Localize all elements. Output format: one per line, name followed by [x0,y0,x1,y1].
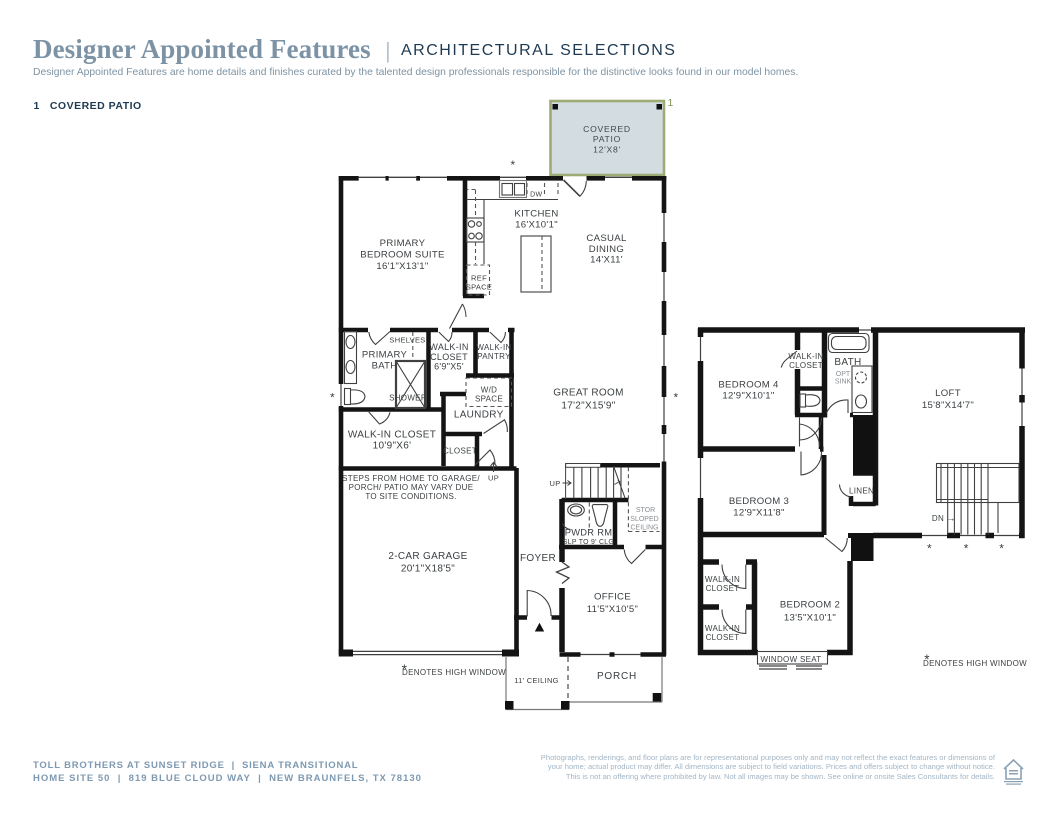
svg-text:WALK-IN: WALK-IN [705,624,740,633]
svg-text:WINDOW SEAT: WINDOW SEAT [761,655,822,664]
svg-text:CLOSET: CLOSET [430,352,468,362]
svg-text:STEPS FROM HOME TO GARAGE/: STEPS FROM HOME TO GARAGE/ [342,474,480,483]
svg-text:SINK: SINK [835,379,852,386]
svg-text:*: * [330,391,335,405]
svg-text:CLOSET: CLOSET [706,584,740,593]
svg-text:GREAT ROOM: GREAT ROOM [553,388,623,399]
svg-text:REF: REF [471,274,487,283]
svg-text:PORCH/ PATIO MAY VARY DUE: PORCH/ PATIO MAY VARY DUE [349,483,474,492]
svg-text:WALK-IN: WALK-IN [705,575,740,584]
svg-text:16'X10'1": 16'X10'1" [515,220,558,231]
svg-text:OPT: OPT [836,371,851,378]
svg-text:LAUNDRY: LAUNDRY [454,410,504,421]
svg-text:SHOWER: SHOWER [389,394,427,403]
svg-text:14'X11': 14'X11' [590,254,623,265]
svg-text:WALK-IN: WALK-IN [429,342,468,352]
svg-text:OFFICE: OFFICE [594,592,631,603]
svg-text:WALK-IN: WALK-IN [788,352,823,361]
svg-text:BEDROOM SUITE: BEDROOM SUITE [360,250,444,261]
svg-text:STOR: STOR [636,507,655,514]
svg-text:11' CEILING: 11' CEILING [514,676,559,685]
svg-text:CLOSET: CLOSET [443,447,477,456]
svg-text:10'9"X6': 10'9"X6' [373,441,412,452]
svg-text:*: * [999,542,1004,556]
svg-text:CASUAL: CASUAL [586,233,627,244]
svg-text:CEILING: CEILING [630,525,658,532]
svg-text:DENOTES HIGH WINDOW: DENOTES HIGH WINDOW [923,659,1027,668]
svg-text:PANTRY: PANTRY [477,352,511,361]
svg-text:6'9"X5': 6'9"X5' [434,362,464,372]
svg-text:11'5"X10'5": 11'5"X10'5" [587,604,638,615]
svg-text:SLOPED: SLOPED [630,516,658,523]
svg-text:2-CAR GARAGE: 2-CAR GARAGE [388,551,467,562]
svg-text:DW: DW [530,192,542,199]
svg-text:16'1"X13'1": 16'1"X13'1" [376,261,428,272]
svg-text:BATH: BATH [834,357,861,368]
svg-text:*: * [674,391,679,405]
svg-text:12'9"X11'8": 12'9"X11'8" [733,508,784,519]
svg-text:*: * [927,542,932,556]
svg-text:12'9"X10'1": 12'9"X10'1" [722,391,774,402]
svg-text:SHELVES: SHELVES [389,336,425,345]
svg-text:UP: UP [549,479,560,488]
svg-text:PRIMARY: PRIMARY [362,350,408,361]
svg-text:1: 1 [668,97,674,109]
svg-text:LOFT: LOFT [935,388,961,399]
svg-text:DENOTES HIGH WINDOW: DENOTES HIGH WINDOW [402,668,506,677]
svg-text:WALK-IN CLOSET: WALK-IN CLOSET [348,430,436,441]
svg-text:BEDROOM 4: BEDROOM 4 [718,380,779,391]
svg-text:TO SITE CONDITIONS.: TO SITE CONDITIONS. [365,492,456,501]
svg-text:DINING: DINING [589,244,624,255]
svg-text:17'2"X15'9": 17'2"X15'9" [561,401,615,412]
svg-text:15'8"X14'7": 15'8"X14'7" [922,400,974,411]
svg-text:PATIO: PATIO [593,134,621,144]
svg-text:13'5"X10'1": 13'5"X10'1" [784,613,836,624]
svg-text:COVERED: COVERED [583,124,631,134]
svg-text:20'1"X18'5": 20'1"X18'5" [401,564,455,575]
svg-text:BEDROOM 3: BEDROOM 3 [729,496,789,507]
svg-text:PRIMARY: PRIMARY [380,238,426,249]
svg-text:→: → [946,513,955,523]
svg-text:12'X8': 12'X8' [593,145,621,155]
svg-text:*: * [511,158,516,172]
svg-text:BATH: BATH [372,361,398,372]
svg-text:CLOSET: CLOSET [706,633,740,642]
svg-text:LINEN: LINEN [849,487,874,496]
svg-text:UP: UP [488,474,499,483]
svg-text:CLOSET: CLOSET [789,361,823,370]
svg-text:DN: DN [932,514,944,523]
svg-text:WALK-IN: WALK-IN [476,343,511,352]
svg-text:SPACE: SPACE [466,283,492,292]
svg-text:BEDROOM 2: BEDROOM 2 [780,600,840,611]
svg-text:*: * [964,542,969,556]
svg-text:PORCH: PORCH [597,671,637,682]
svg-text:SLP TO 9' CLG: SLP TO 9' CLG [563,539,614,546]
svg-text:PWDR RM: PWDR RM [565,528,613,538]
svg-text:W/D: W/D [481,386,497,395]
svg-text:SPACE: SPACE [475,395,503,404]
svg-text:KITCHEN: KITCHEN [514,209,558,220]
svg-text:FOYER: FOYER [520,553,556,564]
